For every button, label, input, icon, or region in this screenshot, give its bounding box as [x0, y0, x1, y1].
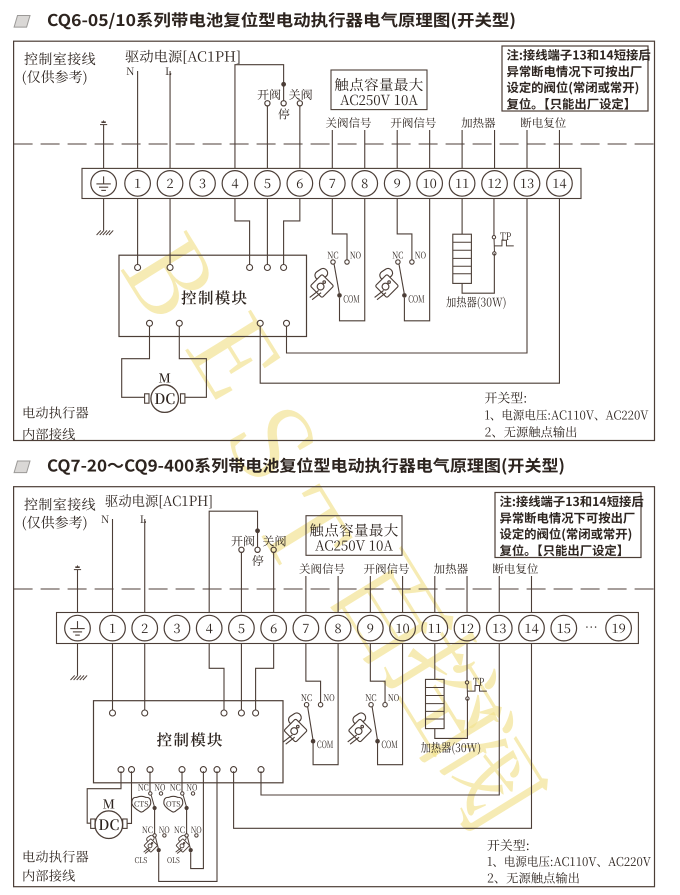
- svg-text:6: 6: [296, 173, 303, 192]
- svg-text:开阀信号: 开阀信号: [363, 561, 409, 577]
- svg-text:8: 8: [361, 173, 368, 192]
- svg-text:关阀: 关阀: [289, 86, 313, 103]
- svg-text:异常断电情况下可按出厂: 异常断电情况下可按出厂: [500, 508, 636, 526]
- svg-text:NC: NC: [301, 690, 312, 704]
- svg-text:2: 2: [166, 173, 173, 192]
- svg-text:NC: NC: [142, 823, 153, 836]
- svg-text:OLS: OLS: [167, 855, 180, 866]
- svg-text:控制室接线: 控制室接线: [24, 495, 96, 515]
- svg-text:(仅供参考): (仅供参考): [22, 67, 88, 87]
- svg-text:NC: NC: [170, 781, 181, 794]
- svg-text:断电复位: 断电复位: [492, 561, 538, 577]
- svg-text:19: 19: [611, 618, 625, 637]
- svg-text:9: 9: [367, 618, 374, 637]
- svg-text:(仅供参考): (仅供参考): [22, 513, 88, 533]
- svg-text:控制室接线: 控制室接线: [24, 49, 96, 69]
- svg-text:15: 15: [557, 618, 571, 637]
- svg-text:1、电源电压:AC110V、AC220V: 1、电源电压:AC110V、AC220V: [487, 852, 651, 870]
- svg-text:10: 10: [395, 618, 409, 637]
- svg-text:注:接线端子13和14短接后: 注:接线端子13和14短接后: [507, 46, 651, 64]
- svg-text:关阀: 关阀: [263, 532, 287, 549]
- svg-text:NC: NC: [365, 690, 376, 704]
- svg-text:CLS: CLS: [135, 855, 148, 866]
- svg-text:4: 4: [206, 618, 213, 637]
- svg-text:4: 4: [231, 173, 238, 192]
- svg-text:12: 12: [487, 173, 501, 192]
- svg-text:3: 3: [199, 173, 206, 192]
- svg-text:OTS: OTS: [166, 798, 181, 809]
- svg-text:驱动电源[AC1PH]: 驱动电源[AC1PH]: [125, 47, 241, 67]
- svg-text:异常断电情况下可按出厂: 异常断电情况下可按出厂: [507, 62, 643, 80]
- svg-text:开阀: 开阀: [231, 532, 255, 549]
- svg-text:注:接线端子13和14短接后: 注:接线端子13和14短接后: [500, 492, 644, 510]
- svg-text:NO: NO: [154, 781, 165, 794]
- svg-text:7: 7: [329, 173, 336, 192]
- svg-text:复位。【只能出厂设定】: 复位。【只能出厂设定】: [507, 94, 637, 112]
- svg-text:11: 11: [428, 618, 442, 637]
- svg-text:停: 停: [278, 106, 290, 123]
- svg-text:2: 2: [141, 618, 148, 637]
- svg-text:2、无源触点输出: 2、无源触点输出: [485, 423, 578, 441]
- svg-text:COM: COM: [408, 290, 425, 305]
- svg-text:8: 8: [335, 618, 342, 637]
- svg-text:NO: NO: [191, 823, 202, 836]
- svg-text:DC: DC: [154, 388, 175, 409]
- svg-text:NO: NO: [186, 781, 197, 794]
- svg-text:加热器(30W): 加热器(30W): [446, 294, 507, 311]
- svg-text:L: L: [165, 64, 172, 79]
- svg-text:14: 14: [524, 618, 538, 637]
- svg-text:1: 1: [134, 173, 141, 192]
- svg-text:6: 6: [270, 618, 277, 637]
- svg-text:开阀信号: 开阀信号: [390, 115, 436, 131]
- svg-text:N: N: [126, 64, 134, 79]
- svg-text:12: 12: [460, 618, 474, 637]
- svg-text:电动执行器: 电动执行器: [22, 403, 89, 422]
- svg-text:AC250V 10A: AC250V 10A: [340, 90, 418, 110]
- svg-text:关阀信号: 关阀信号: [299, 561, 345, 577]
- svg-text:开关型:: 开关型:: [485, 388, 528, 407]
- svg-text:电动执行器: 电动执行器: [22, 847, 89, 866]
- svg-text:NO: NO: [415, 247, 426, 261]
- svg-text:NO: NO: [323, 690, 334, 704]
- svg-text:COM: COM: [381, 736, 398, 751]
- svg-text:CQ7-20～CQ9-400系列带电池复位型电动执行器电气原: CQ7-20～CQ9-400系列带电池复位型电动执行器电气原理图(开关型): [47, 453, 565, 477]
- svg-text:M: M: [159, 368, 171, 386]
- svg-text:加热器(30W): 加热器(30W): [421, 739, 482, 756]
- svg-text:加热器: 加热器: [461, 115, 496, 131]
- svg-text:关阀信号: 关阀信号: [326, 115, 372, 131]
- svg-text:开阀: 开阀: [257, 86, 281, 103]
- svg-text:设定的阀位(常闭或常开): 设定的阀位(常闭或常开): [507, 78, 640, 96]
- svg-text:13: 13: [520, 173, 534, 192]
- svg-text:NC: NC: [138, 781, 149, 794]
- svg-text:AC250V 10A: AC250V 10A: [315, 536, 393, 556]
- svg-text:3: 3: [173, 618, 180, 637]
- svg-text:断电复位: 断电复位: [520, 115, 566, 131]
- svg-text:1、电源电压:AC110V、AC220V: 1、电源电压:AC110V、AC220V: [485, 406, 649, 424]
- svg-text:7: 7: [302, 618, 309, 637]
- svg-text:2、无源触点输出: 2、无源触点输出: [487, 869, 580, 887]
- svg-text:NC: NC: [174, 823, 185, 836]
- svg-text:CTS: CTS: [134, 798, 149, 809]
- svg-text:DC: DC: [98, 814, 119, 835]
- svg-text:NO: NO: [159, 823, 170, 836]
- svg-text:CQ6-05/10系列带电池复位型电动执行器电气原理图(开关: CQ6-05/10系列带电池复位型电动执行器电气原理图(开关型): [47, 7, 516, 31]
- svg-text:驱动电源[AC1PH]: 驱动电源[AC1PH]: [105, 491, 213, 511]
- svg-text:9: 9: [394, 173, 401, 192]
- svg-text:14: 14: [552, 173, 566, 192]
- svg-text:控制模块: 控制模块: [181, 287, 248, 309]
- svg-text:内部接线: 内部接线: [22, 424, 76, 443]
- svg-text:设定的阀位(常闭或常开): 设定的阀位(常闭或常开): [500, 525, 633, 543]
- svg-text:13: 13: [492, 618, 506, 637]
- svg-text:…: …: [585, 617, 598, 636]
- svg-text:内部接线: 内部接线: [22, 866, 76, 885]
- svg-text:NC: NC: [392, 247, 403, 261]
- svg-text:NC: NC: [327, 247, 338, 261]
- svg-text:1: 1: [109, 618, 116, 637]
- svg-text:控制模块: 控制模块: [157, 729, 224, 751]
- svg-text:加热器: 加热器: [434, 561, 469, 577]
- svg-text:COM: COM: [317, 736, 334, 751]
- svg-text:NO: NO: [388, 690, 399, 704]
- svg-text:5: 5: [264, 173, 271, 192]
- svg-text:11: 11: [455, 173, 469, 192]
- svg-text:L: L: [140, 512, 147, 527]
- svg-text:复位。【只能出厂设定】: 复位。【只能出厂设定】: [500, 541, 630, 559]
- svg-text:5: 5: [238, 618, 245, 637]
- svg-text:停: 停: [252, 552, 264, 569]
- svg-text:NO: NO: [350, 247, 361, 261]
- svg-text:COM: COM: [343, 290, 360, 305]
- svg-text:10: 10: [422, 173, 436, 192]
- svg-text:M: M: [103, 794, 115, 812]
- svg-text:N: N: [101, 512, 109, 527]
